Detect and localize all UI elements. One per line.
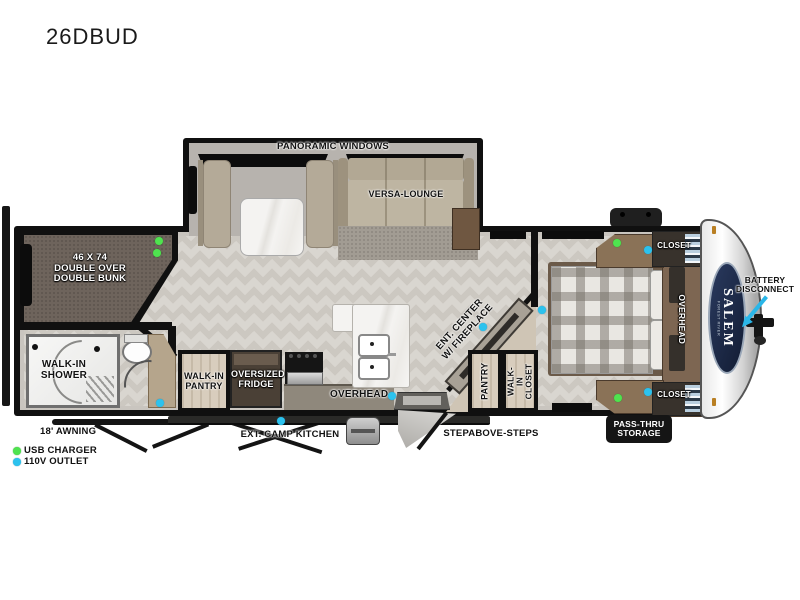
usb-charger-dot bbox=[153, 249, 161, 257]
panoramic-windows-label: PANORAMIC WINDOWS bbox=[233, 142, 433, 153]
page-title: 26DBUD bbox=[46, 24, 139, 50]
bedroom-overhead-label: OVERHEAD bbox=[677, 294, 688, 344]
outlet-110v-dot bbox=[538, 306, 546, 314]
closet-top-label: CLOSET bbox=[650, 241, 698, 252]
walk-in-closet-room: WALK-IN CLOSET bbox=[502, 350, 538, 412]
outlet-110v-dot bbox=[156, 399, 164, 407]
oversized-fridge-label: OVERSIZED FRIDGE bbox=[231, 370, 281, 389]
living-window-top-icon bbox=[490, 231, 526, 239]
bath-wall-top bbox=[16, 322, 172, 330]
usb-charger-dot bbox=[614, 394, 622, 402]
legend-outlet-label: 110V OUTLET bbox=[24, 457, 89, 468]
stove-icon bbox=[285, 352, 323, 384]
rear-bumper bbox=[2, 206, 10, 406]
dinette-table bbox=[240, 198, 304, 256]
kitchen-overhead-label: OVERHEAD bbox=[330, 390, 388, 401]
shower-head-icon bbox=[94, 346, 100, 352]
outlet-110v-dot bbox=[644, 246, 652, 254]
legend-usb-label: USB CHARGER bbox=[24, 446, 97, 457]
awning-arm bbox=[152, 423, 209, 449]
lounge-seat bbox=[348, 180, 464, 230]
pantry-label: PANTRY bbox=[480, 362, 491, 399]
outlet-110v-dot bbox=[388, 392, 396, 400]
legend-outlet-dot bbox=[13, 458, 21, 466]
clearance-light bbox=[712, 226, 716, 234]
walk-in-pantry-label: WALK-IN PANTRY bbox=[180, 372, 228, 391]
bedroom-overhead-wrap: OVERHEAD bbox=[664, 288, 700, 350]
awning-label: 18' AWNING bbox=[40, 427, 104, 438]
kitchen-sink-icon bbox=[358, 334, 390, 378]
exterior-accent-tab bbox=[610, 208, 662, 228]
dinette-bench-left bbox=[203, 160, 231, 248]
toilet-tank bbox=[124, 334, 148, 343]
closet-bottom-label: CLOSET bbox=[650, 390, 698, 401]
ext-camp-kitchen-label: EXT. CAMP KITCHEN bbox=[238, 430, 342, 441]
pass-thru-storage-tag: PASS-THRU STORAGE bbox=[606, 415, 672, 443]
bedroom-window-top-icon bbox=[542, 231, 604, 239]
walk-in-shower-label: WALK-IN SHOWER bbox=[34, 360, 94, 381]
bed bbox=[551, 266, 653, 374]
dinette-side-window-icon bbox=[188, 166, 197, 214]
usb-charger-dot bbox=[613, 239, 621, 247]
legend-usb-dot bbox=[13, 447, 21, 455]
bunk-label: 46 X 74 DOUBLE OVER DOUBLE BUNK bbox=[36, 253, 144, 285]
walk-in-closet-label: WALK-IN CLOSET bbox=[507, 363, 534, 399]
water-heater bbox=[346, 417, 380, 445]
battery-disconnect-label: BATTERY DISCONNECT bbox=[732, 276, 798, 294]
pantry-room: PANTRY bbox=[468, 350, 502, 412]
dinette-bench-right bbox=[306, 160, 334, 248]
bedroom-wall bbox=[531, 231, 538, 307]
bedroom-window-bottom-icon bbox=[552, 403, 592, 412]
usb-charger-dot bbox=[155, 237, 163, 245]
lounge-end-cabinet bbox=[452, 208, 480, 250]
brand-name: SALEM bbox=[719, 288, 735, 348]
brand-sub: FOREST RIVER bbox=[716, 301, 721, 337]
entry-step-landing bbox=[394, 392, 450, 410]
clearance-light bbox=[712, 398, 716, 406]
floorplan-image: 26DBUD PANORAMIC WINDOWS VERSA-LOUNGE 46… bbox=[0, 0, 800, 600]
pass-thru-storage-label: PASS-THRU STORAGE bbox=[614, 420, 665, 439]
outlet-110v-dot bbox=[479, 323, 487, 331]
shower-head-icon bbox=[32, 344, 38, 350]
lounge-armrest-left bbox=[338, 158, 348, 232]
hitch-wheel bbox=[754, 336, 766, 345]
rear-window-icon bbox=[20, 244, 32, 306]
outlet-110v-dot bbox=[277, 417, 285, 425]
lounge-backrest bbox=[348, 158, 464, 180]
outlet-110v-dot bbox=[644, 388, 652, 396]
stepabove-steps-label: STEPABOVE-STEPS bbox=[442, 429, 540, 440]
versa-lounge-label: VERSA-LOUNGE bbox=[350, 189, 462, 200]
